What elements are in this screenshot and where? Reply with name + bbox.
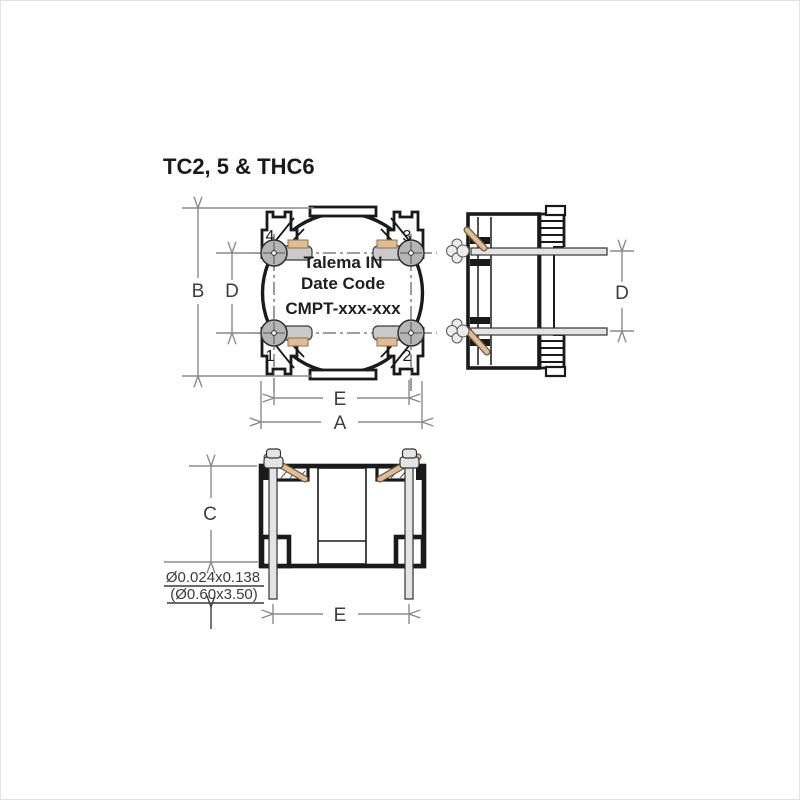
dimension-E-top: E — [274, 380, 409, 410]
dim-label-E-top: E — [334, 389, 347, 410]
pin-note-imperial: Ø0.024x0.138 — [166, 569, 260, 586]
side-view: D — [447, 206, 635, 376]
pad-1 — [261, 320, 287, 346]
drawing-sheet: TC2, 5 & THC6 — [0, 0, 800, 800]
dimension-D-top: D — [216, 253, 258, 333]
pin-number-1: 1 — [266, 348, 275, 365]
top-view: 4 3 1 2 Talema IN Date Code CMPT-xxx-xxx… — [182, 207, 437, 434]
pin-note-metric: (Ø0.60x3.50) — [170, 586, 258, 603]
front-pin-right — [405, 466, 413, 599]
pin-number-3: 3 — [403, 228, 412, 245]
page-title: TC2, 5 & THC6 — [163, 154, 315, 179]
front-view: C Ø0.024x0.138 (Ø0.60x3.50) E — [164, 449, 424, 629]
side-pin-bottom — [471, 328, 607, 335]
dim-label-D-top: D — [225, 281, 239, 302]
marking-line-1: Talema IN — [303, 253, 382, 272]
dim-label-A: A — [334, 413, 347, 434]
technical-drawing: TC2, 5 & THC6 — [1, 1, 799, 799]
pad-2 — [398, 320, 424, 346]
marking-line-3: CMPT-xxx-xxx — [285, 299, 401, 318]
front-pin-left — [269, 466, 277, 599]
marking-line-2: Date Code — [301, 274, 385, 293]
pin-number-4: 4 — [266, 228, 275, 245]
pin-castellations — [447, 239, 470, 343]
dimension-E-front: E — [273, 604, 409, 626]
side-pin-top — [471, 248, 607, 255]
dim-label-C: C — [203, 504, 217, 525]
dim-label-D-side: D — [615, 283, 629, 304]
top-tab — [310, 207, 376, 216]
bottom-tab — [310, 370, 376, 379]
dim-label-E-front: E — [334, 605, 347, 626]
dimension-C: C — [164, 466, 258, 562]
dimension-D-side: D — [610, 251, 634, 331]
mounting-flange — [540, 206, 566, 376]
pin-size-note: Ø0.024x0.138 (Ø0.60x3.50) — [164, 569, 264, 629]
pin-number-2: 2 — [403, 348, 412, 365]
bobbin-column — [318, 468, 366, 564]
dim-label-B: B — [192, 281, 205, 302]
